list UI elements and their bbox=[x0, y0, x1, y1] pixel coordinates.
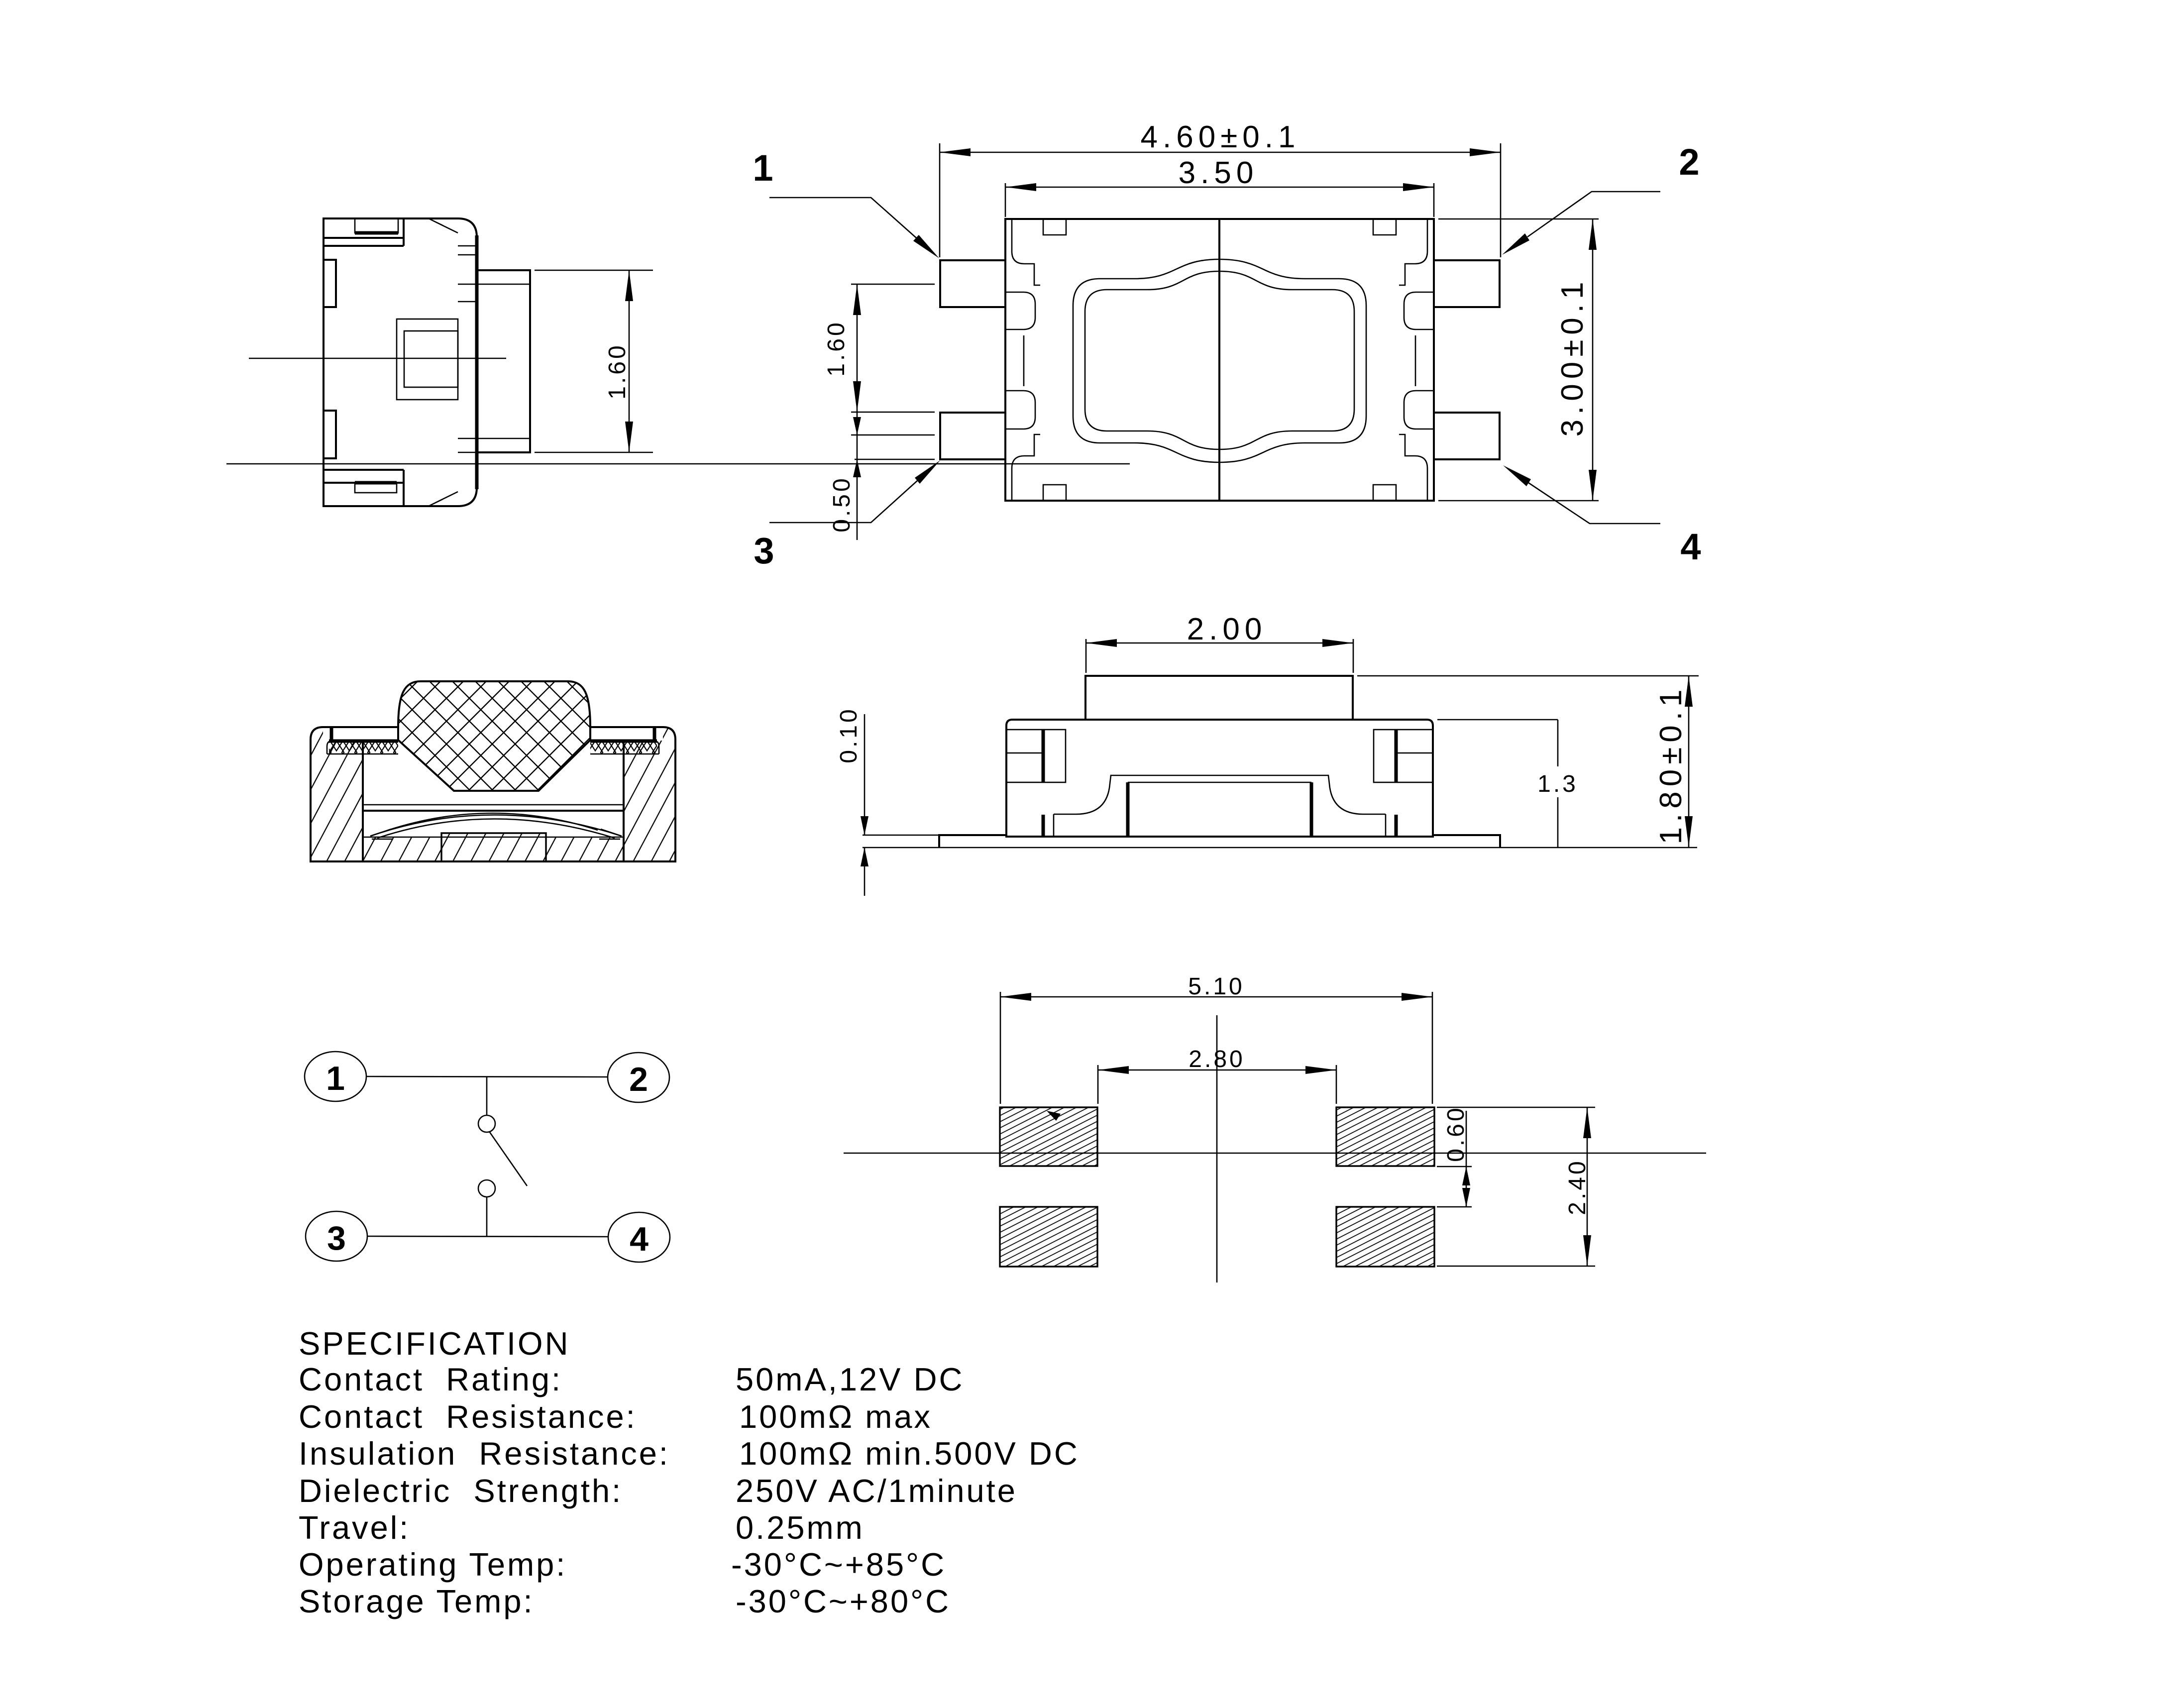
svg-text:3: 3 bbox=[754, 530, 774, 571]
svg-text:-30°C~+80°C: -30°C~+80°C bbox=[736, 1583, 951, 1619]
svg-text:-30°C~+85°C: -30°C~+85°C bbox=[731, 1546, 946, 1583]
svg-text:1.80±0.1: 1.80±0.1 bbox=[1654, 685, 1688, 845]
svg-text:1.60: 1.60 bbox=[604, 343, 631, 399]
svg-text:4.60±0.1: 4.60±0.1 bbox=[1141, 120, 1300, 154]
svg-text:100mΩ max: 100mΩ max bbox=[739, 1398, 932, 1435]
svg-text:1.60: 1.60 bbox=[823, 320, 850, 376]
svg-text:3.00±0.1: 3.00±0.1 bbox=[1555, 277, 1590, 437]
svg-text:0.50: 0.50 bbox=[829, 476, 855, 532]
svg-text:3: 3 bbox=[327, 1219, 346, 1257]
svg-text:2: 2 bbox=[629, 1061, 648, 1098]
svg-text:Storage Temp:: Storage Temp: bbox=[299, 1583, 535, 1619]
svg-text:Travel:: Travel: bbox=[299, 1509, 410, 1546]
svg-text:4: 4 bbox=[1680, 526, 1701, 567]
svg-text:3.50: 3.50 bbox=[1179, 156, 1259, 190]
svg-text:50mA,12V DC: 50mA,12V DC bbox=[736, 1361, 964, 1397]
svg-text:250V AC/1minute: 250V AC/1minute bbox=[736, 1473, 1017, 1509]
svg-text:2: 2 bbox=[1679, 141, 1699, 183]
svg-text:100mΩ min.500V DC: 100mΩ min.500V DC bbox=[739, 1435, 1080, 1472]
svg-text:2.40: 2.40 bbox=[1564, 1159, 1591, 1215]
svg-text:1: 1 bbox=[326, 1060, 345, 1097]
svg-text:0.60: 0.60 bbox=[1443, 1105, 1469, 1162]
svg-text:2.80: 2.80 bbox=[1189, 1046, 1245, 1072]
svg-text:Dielectric Strength:: Dielectric Strength: bbox=[299, 1473, 623, 1509]
svg-text:Operating Temp:: Operating Temp: bbox=[299, 1546, 567, 1583]
svg-text:1.3: 1.3 bbox=[1537, 771, 1578, 797]
svg-text:Contact Rating:: Contact Rating: bbox=[299, 1361, 562, 1397]
svg-text:SPECIFICATION: SPECIFICATION bbox=[299, 1325, 570, 1362]
svg-text:2.00: 2.00 bbox=[1187, 612, 1267, 646]
svg-text:4: 4 bbox=[630, 1220, 649, 1258]
svg-text:5.10: 5.10 bbox=[1188, 973, 1244, 1000]
svg-text:Contact Resistance:: Contact Resistance: bbox=[299, 1398, 637, 1435]
svg-text:0.10: 0.10 bbox=[836, 707, 862, 763]
svg-text:0.25mm: 0.25mm bbox=[736, 1509, 865, 1546]
svg-text:Insulation Resistance:: Insulation Resistance: bbox=[299, 1435, 670, 1472]
svg-text:1: 1 bbox=[753, 147, 773, 189]
